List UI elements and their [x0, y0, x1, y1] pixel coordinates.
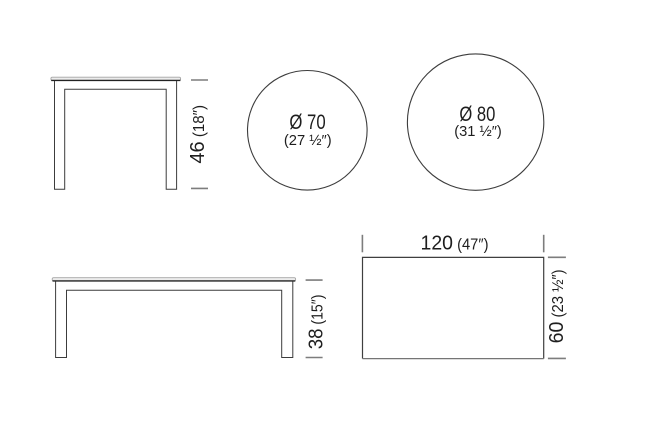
- svg-text:120 (47″): 120 (47″): [421, 232, 489, 255]
- svg-text:Ø 70: Ø 70: [289, 110, 325, 134]
- svg-text:60 (23 ½″): 60 (23 ½″): [545, 269, 567, 343]
- svg-text:(31 ½″): (31 ½″): [454, 123, 502, 140]
- svg-text:(27 ½″): (27 ½″): [284, 132, 332, 149]
- svg-text:46 (18″): 46 (18″): [187, 105, 209, 164]
